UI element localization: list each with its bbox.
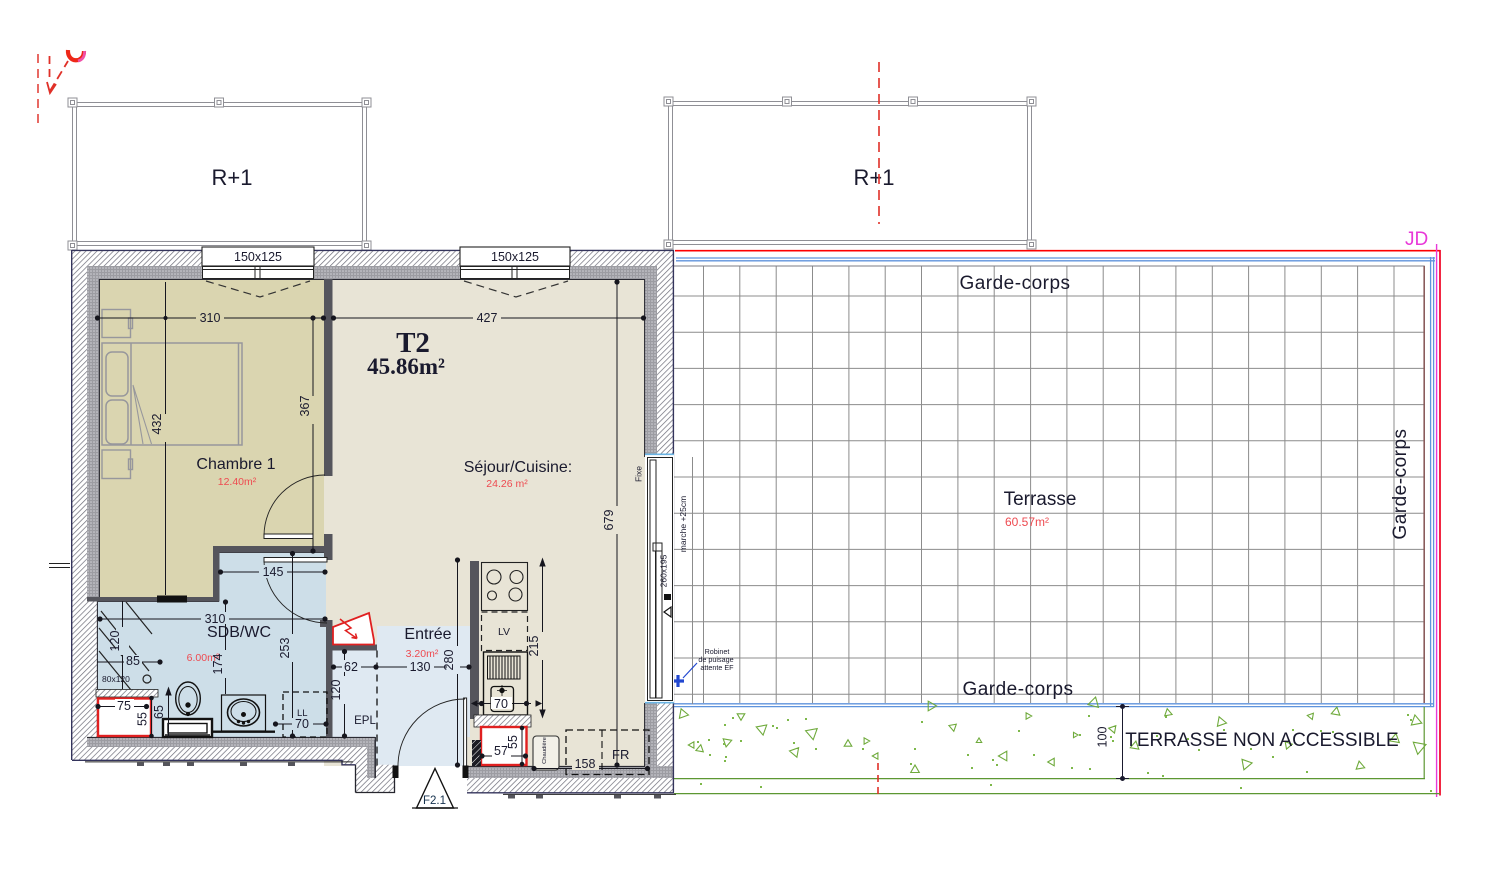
svg-text:TERRASSE NON ACCESSIBLE: TERRASSE NON ACCESSIBLE	[1125, 730, 1398, 751]
svg-text:Chaudière: Chaudière	[542, 737, 548, 764]
svg-text:R+1: R+1	[854, 165, 895, 190]
svg-text:100: 100	[1096, 727, 1110, 748]
svg-text:SDB/WC: SDB/WC	[207, 624, 271, 641]
svg-text:3.20m²: 3.20m²	[406, 648, 439, 660]
svg-text:attente EF: attente EF	[700, 663, 734, 672]
svg-text:55: 55	[506, 735, 520, 749]
svg-text:JD: JD	[1405, 229, 1428, 250]
svg-text:Fixe: Fixe	[634, 466, 644, 482]
svg-text:150x125: 150x125	[234, 250, 282, 264]
svg-text:62: 62	[344, 660, 358, 674]
svg-text:FR: FR	[612, 747, 629, 762]
svg-text:Entrée: Entrée	[404, 626, 451, 643]
svg-text:24.26 m²: 24.26 m²	[486, 478, 528, 490]
svg-text:70: 70	[494, 697, 508, 711]
svg-text:marche +25cm: marche +25cm	[678, 496, 688, 552]
svg-text:65: 65	[152, 705, 166, 719]
svg-text:55: 55	[136, 712, 150, 726]
svg-text:LV: LV	[498, 626, 510, 638]
svg-text:Chambre 1: Chambre 1	[196, 456, 275, 473]
svg-text:Terrasse: Terrasse	[1004, 489, 1077, 510]
svg-text:85: 85	[126, 654, 140, 668]
svg-text:150x125: 150x125	[491, 250, 539, 264]
svg-text:75: 75	[117, 699, 131, 713]
svg-text:280: 280	[442, 650, 456, 671]
svg-text:Garde-corps: Garde-corps	[962, 679, 1073, 700]
svg-text:367: 367	[298, 396, 312, 417]
svg-text:Séjour/Cuisine:: Séjour/Cuisine:	[464, 459, 573, 476]
svg-text:70: 70	[295, 717, 309, 731]
svg-text:260x195: 260x195	[659, 554, 669, 587]
svg-text:253: 253	[278, 638, 292, 659]
svg-text:F2.1: F2.1	[423, 795, 446, 807]
svg-text:60.57m²: 60.57m²	[1005, 515, 1049, 529]
svg-text:432: 432	[150, 414, 164, 435]
svg-text:EPL: EPL	[354, 715, 376, 727]
svg-text:145: 145	[263, 565, 284, 579]
svg-text:80x120: 80x120	[102, 674, 130, 684]
svg-text:158: 158	[575, 757, 596, 771]
svg-text:Garde-corps: Garde-corps	[1390, 428, 1411, 539]
svg-text:174: 174	[211, 654, 225, 675]
svg-text:310: 310	[200, 311, 221, 325]
svg-text:310: 310	[205, 612, 226, 626]
svg-text:45.86m²: 45.86m²	[367, 354, 445, 379]
svg-text:679: 679	[602, 510, 616, 531]
svg-text:120: 120	[329, 680, 343, 701]
svg-text:Garde-corps: Garde-corps	[959, 273, 1070, 294]
svg-text:215: 215	[527, 636, 541, 657]
svg-text:12.40m²: 12.40m²	[218, 476, 257, 488]
svg-text:120: 120	[108, 631, 122, 652]
svg-text:R+1: R+1	[212, 165, 253, 190]
svg-text:130: 130	[410, 660, 431, 674]
svg-text:427: 427	[477, 311, 498, 325]
